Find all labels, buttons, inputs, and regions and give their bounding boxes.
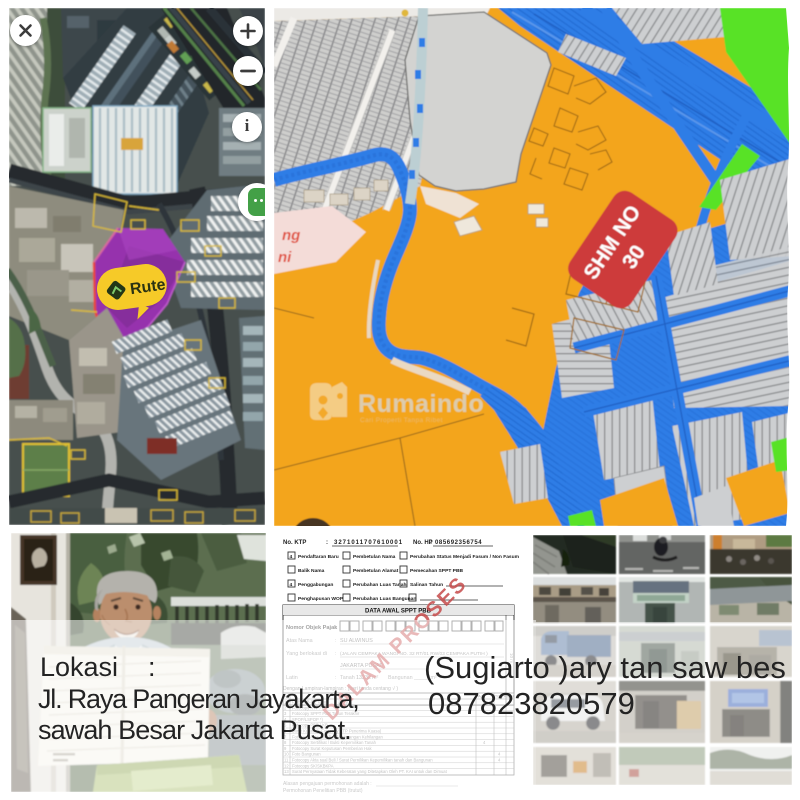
svg-text:No. KTP: No. KTP <box>283 540 306 546</box>
svg-text:Perubahan Luas Bangunan: Perubahan Luas Bangunan <box>353 596 416 602</box>
svg-text:Perubahan Luas Tanah: Perubahan Luas Tanah <box>353 582 406 588</box>
svg-text:ng: ng <box>282 227 300 244</box>
svg-text:085692356754: 085692356754 <box>435 540 482 546</box>
svg-text:Pembetulan Nama: Pembetulan Nama <box>353 554 396 560</box>
svg-text:Perubahan Status Menjadi Fasum: Perubahan Status Menjadi Fasum / Non Fas… <box>410 554 520 560</box>
svg-text:Penggabungan: Penggabungan <box>298 582 333 588</box>
svg-text:Cari Properti Tanpa Ribet: Cari Properti Tanpa Ribet <box>360 417 443 424</box>
svg-text:Penghapusan WOP: Penghapusan WOP <box>298 596 344 602</box>
svg-text::: : <box>430 540 432 546</box>
svg-text::: : <box>326 540 328 546</box>
svg-text:Balik Nama: Balik Nama <box>298 568 325 574</box>
svg-text:3271011707610001: 3271011707610001 <box>334 540 403 546</box>
svg-text:Rumaindo: Rumaindo <box>358 390 484 418</box>
svg-text:Salinan Tahun: Salinan Tahun <box>410 582 443 588</box>
svg-text:Pendaftaran Baru: Pendaftaran Baru <box>298 554 339 560</box>
svg-text:4: 4 <box>290 554 293 560</box>
svg-text:ni: ni <box>278 249 292 266</box>
svg-text:4: 4 <box>290 582 293 588</box>
svg-text:Pembetulan Alamat: Pembetulan Alamat <box>353 568 399 574</box>
